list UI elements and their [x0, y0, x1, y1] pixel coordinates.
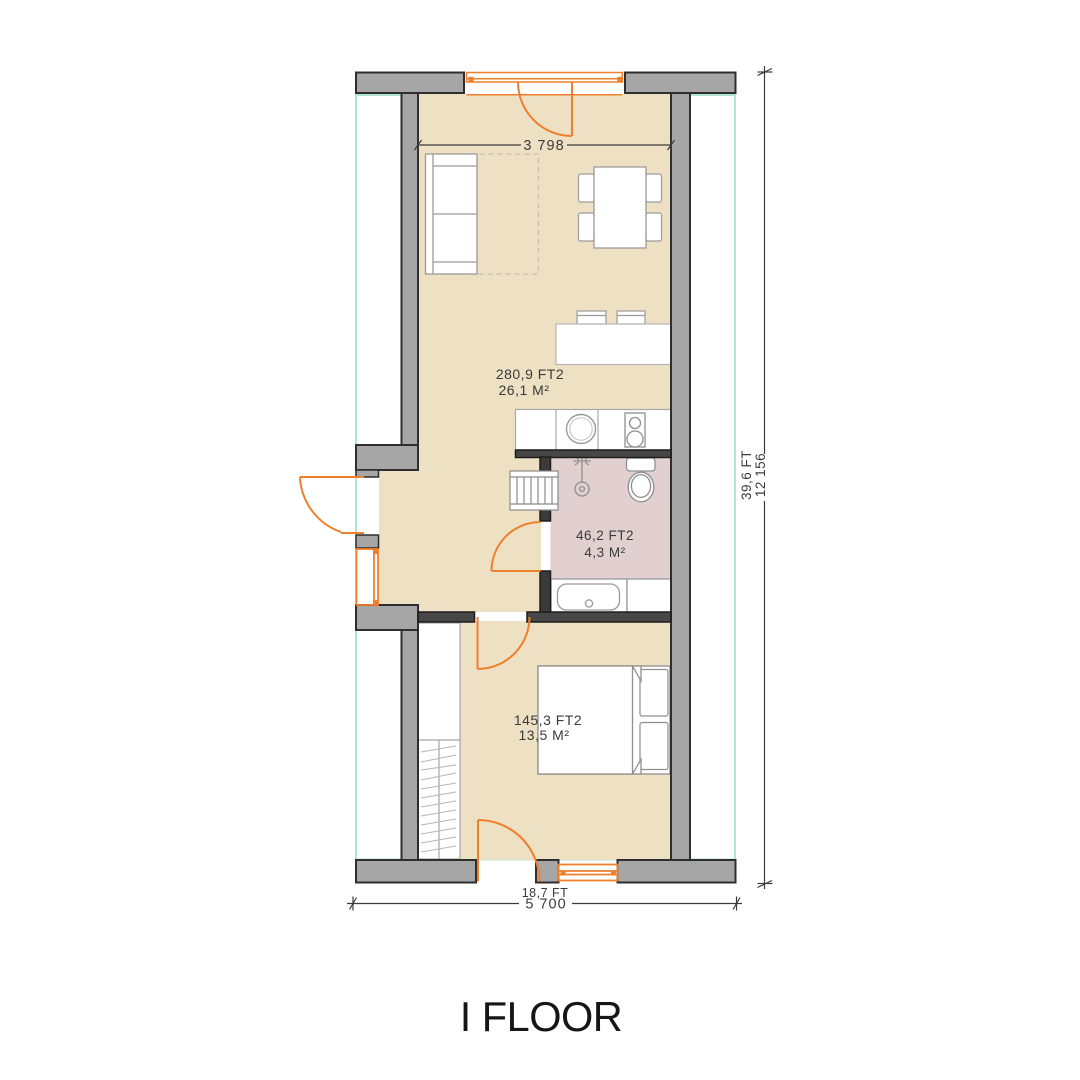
svg-text:3 798: 3 798 — [523, 138, 564, 154]
svg-text:4,3 M²: 4,3 M² — [584, 545, 625, 560]
svg-text:5 700: 5 700 — [525, 897, 566, 913]
svg-text:280,9 FT2: 280,9 FT2 — [496, 366, 564, 382]
svg-text:145,3 FT2: 145,3 FT2 — [514, 712, 582, 728]
svg-text:13,5 M²: 13,5 M² — [519, 727, 570, 743]
svg-text:I FLOOR: I FLOOR — [460, 993, 623, 1040]
svg-text:26,1 M²: 26,1 M² — [499, 382, 550, 398]
svg-text:39,6 FT: 39,6 FT — [739, 450, 754, 500]
svg-text:12 156: 12 156 — [753, 453, 768, 497]
svg-text:46,2 FT2: 46,2 FT2 — [576, 528, 634, 543]
